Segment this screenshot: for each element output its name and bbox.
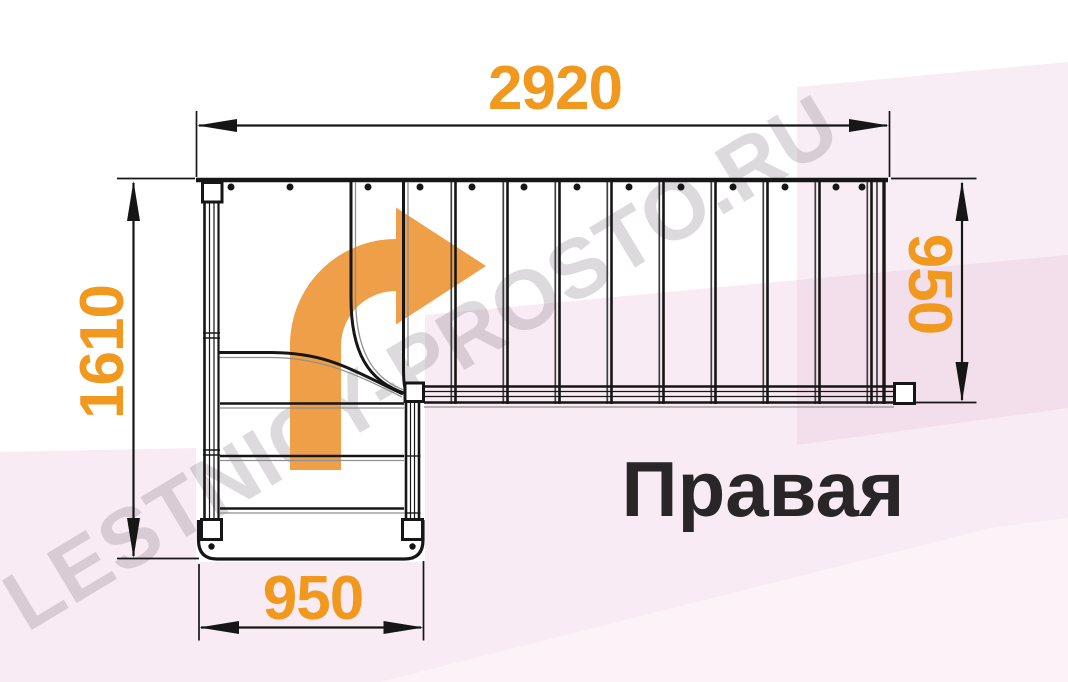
right-newel-post <box>895 384 915 404</box>
dimension-label-right: 950 <box>904 184 954 384</box>
corner-newel-post <box>405 383 424 402</box>
staircase-plan-canvas: LESTNICY-PROSTO.RU <box>0 0 1068 682</box>
dimension-label-left: 1610 <box>78 252 128 452</box>
dimension-label-top: 2920 <box>450 62 660 116</box>
dimension-label-bottom: 950 <box>213 572 413 626</box>
top-left-newel-post <box>203 183 223 203</box>
orientation-title: Правая <box>603 446 923 532</box>
baluster-dots <box>228 184 866 191</box>
bottom-right-newel-post <box>403 520 423 540</box>
bottom-step <box>199 520 424 559</box>
bottom-left-newel-post <box>202 520 222 540</box>
